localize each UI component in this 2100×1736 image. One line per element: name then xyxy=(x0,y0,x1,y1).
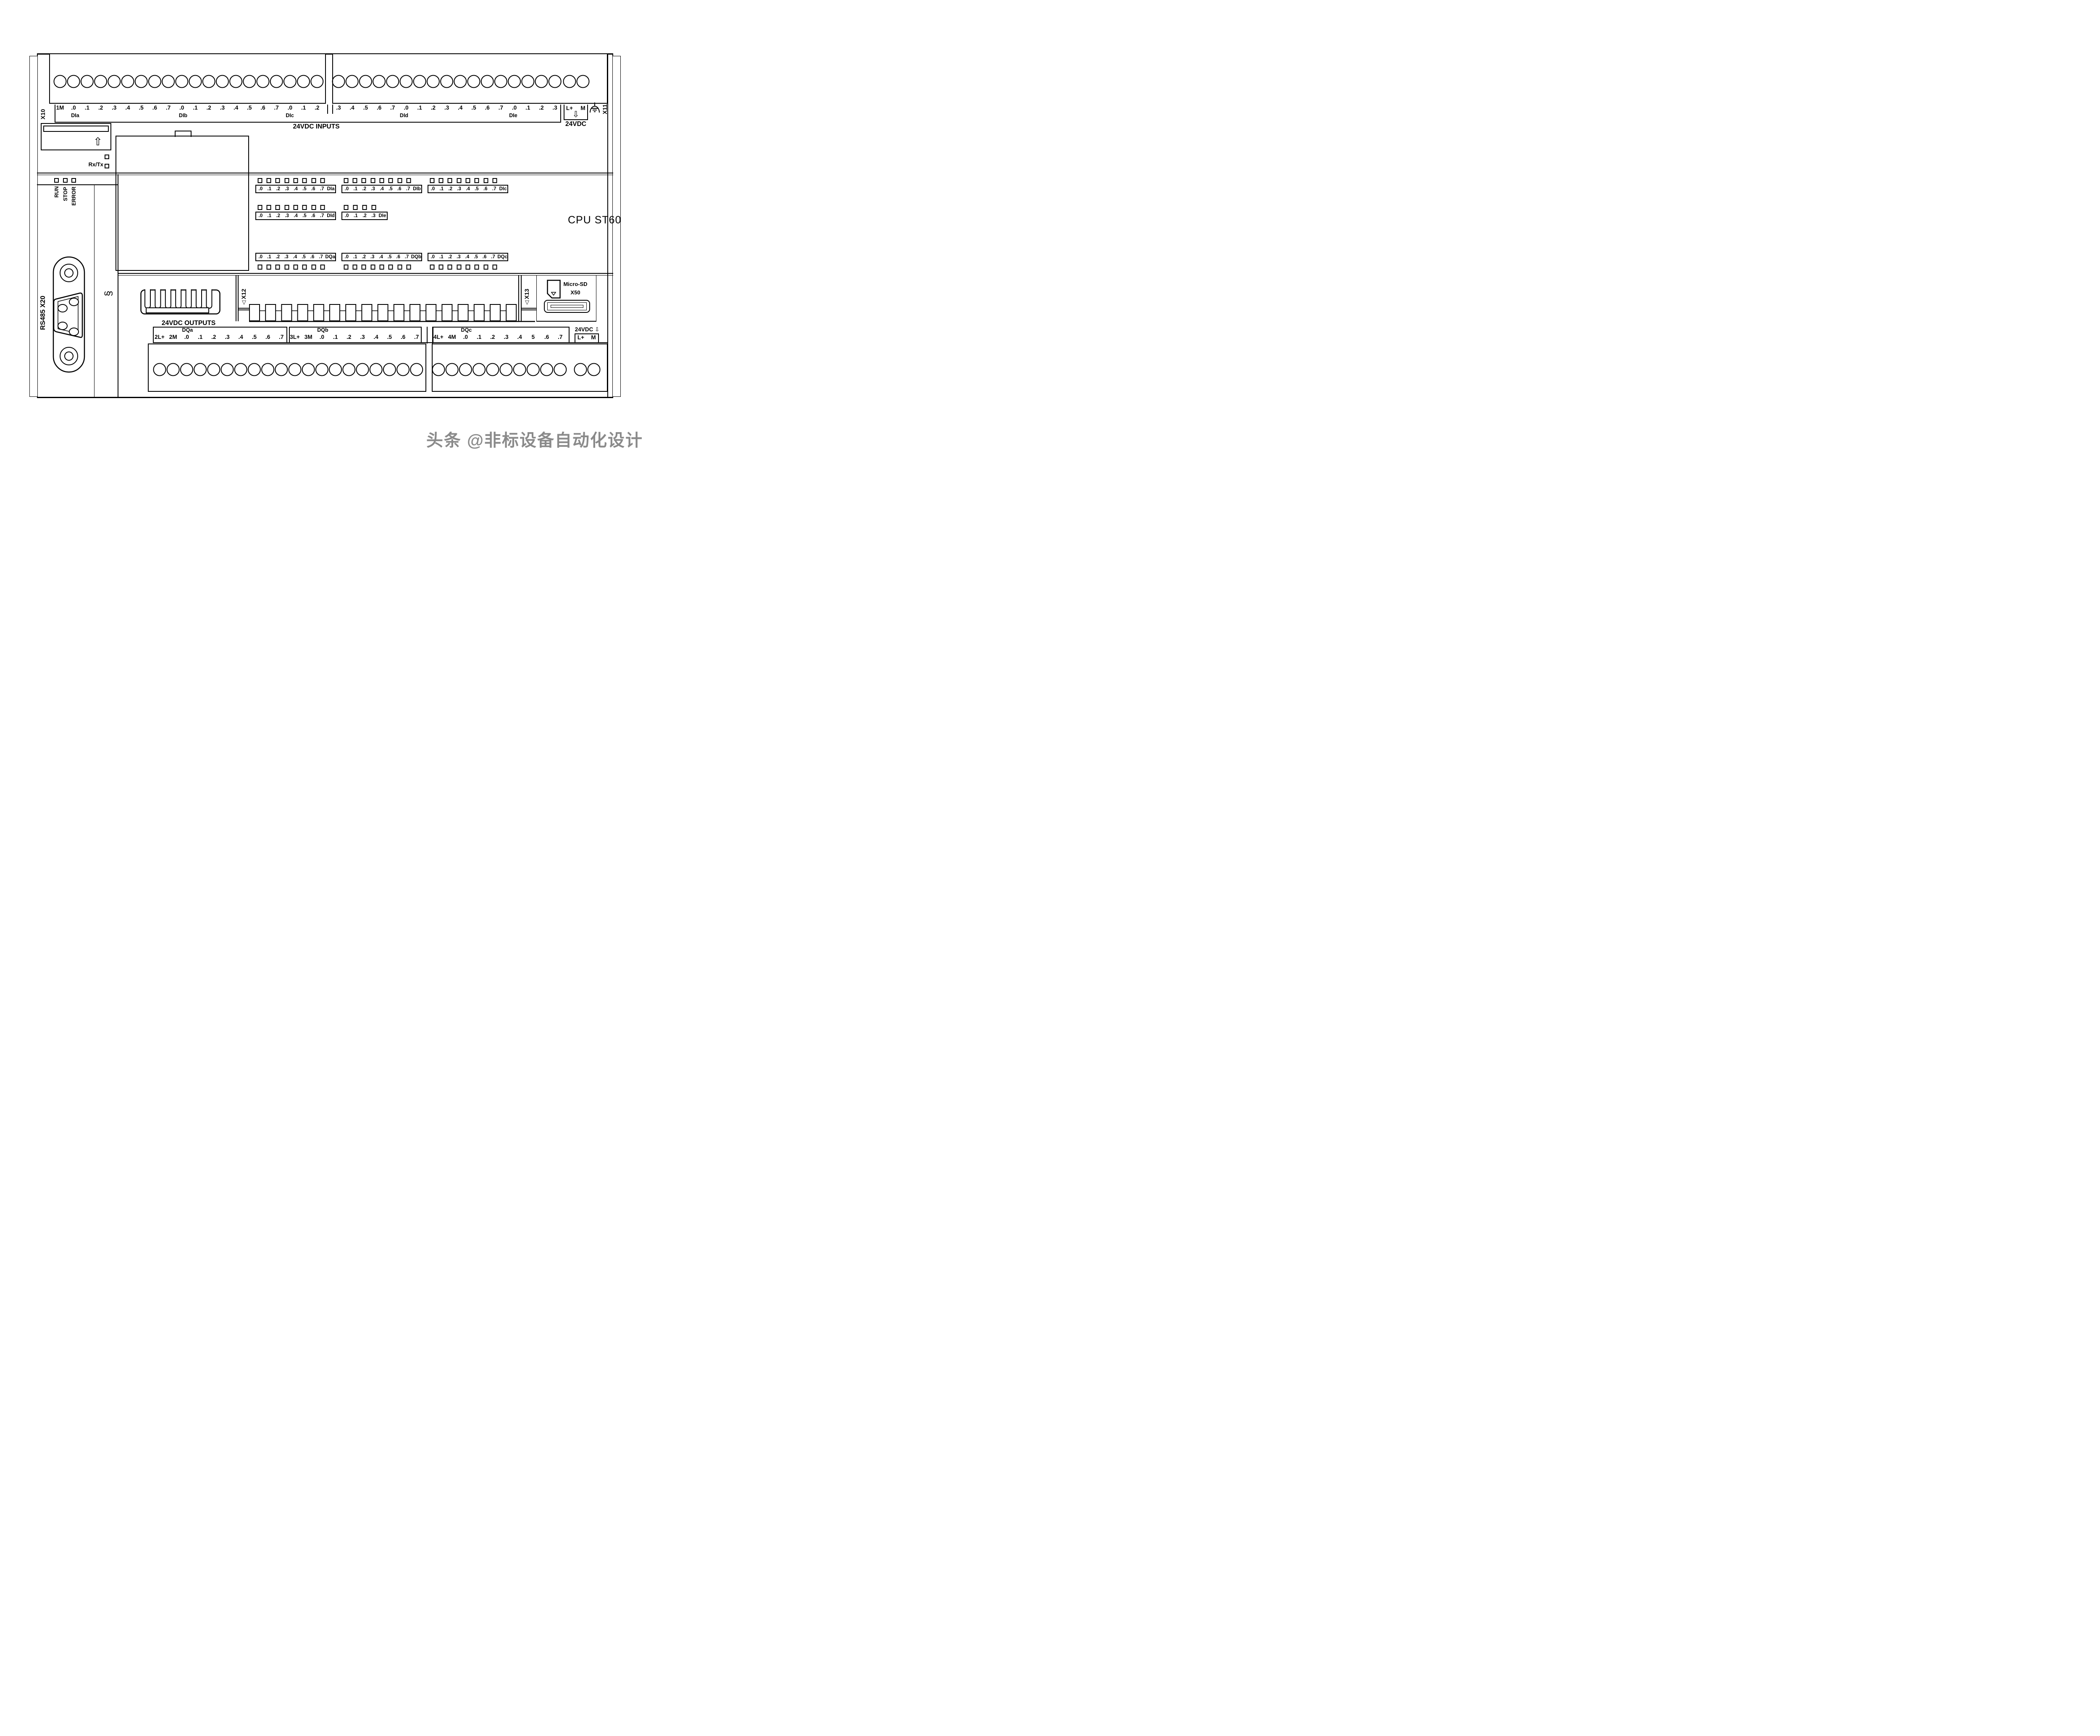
input-terminal-label: .1 xyxy=(85,105,89,111)
input-terminal-label: .6 xyxy=(485,105,490,111)
input-terminal-label: .6 xyxy=(152,105,157,111)
input-terminal-label: .0 xyxy=(71,105,76,111)
input-terminal-label: .4 xyxy=(125,105,130,111)
input-group-label: DIb xyxy=(179,113,187,118)
input-terminal-label: .2 xyxy=(539,105,543,111)
input-terminal-label: .7 xyxy=(166,105,171,111)
input-group-label: DId xyxy=(400,113,408,118)
input-group-label: DIe xyxy=(509,113,517,118)
input-terminal-label: .7 xyxy=(274,105,279,111)
input-terminal-label: .4 xyxy=(350,105,354,111)
input-group-label: DIc xyxy=(286,113,294,118)
input-terminal-label: .0 xyxy=(512,105,517,111)
input-terminal-label: .5 xyxy=(139,105,144,111)
input-terminal-label: .4 xyxy=(458,105,462,111)
input-terminal-label: .5 xyxy=(471,105,476,111)
terminal-screw-circles xyxy=(0,0,650,459)
input-terminal-label: .4 xyxy=(234,105,238,111)
input-terminal-label: .1 xyxy=(417,105,422,111)
input-terminal-label: .3 xyxy=(112,105,116,111)
input-terminal-label: .3 xyxy=(220,105,225,111)
input-terminal-label: .2 xyxy=(98,105,103,111)
input-terminal-label: .6 xyxy=(260,105,265,111)
input-terminal-label: .0 xyxy=(179,105,184,111)
input-terminal-label: .3 xyxy=(444,105,449,111)
input-group-label: DIa xyxy=(71,113,79,118)
plc-wiring-diagram: L+ M ⇩ 24VDC X10 X11 24VDC INPUTS ⇧ Rx/T… xyxy=(0,0,650,459)
input-terminal-label: .7 xyxy=(390,105,395,111)
input-terminal-label: .3 xyxy=(553,105,557,111)
input-terminal-label: .7 xyxy=(499,105,503,111)
input-terminal-label: .1 xyxy=(301,105,306,111)
input-terminal-label: .5 xyxy=(247,105,252,111)
input-terminal-label: .5 xyxy=(363,105,368,111)
input-terminal-label: .2 xyxy=(315,105,319,111)
input-terminal-label: .0 xyxy=(404,105,408,111)
input-terminal-label: .1 xyxy=(193,105,197,111)
watermark: 头条 @非标设备自动化设计 xyxy=(426,427,643,451)
input-terminal-label: .2 xyxy=(207,105,211,111)
input-terminal-label: .6 xyxy=(377,105,381,111)
input-terminal-label: .1 xyxy=(525,105,530,111)
input-terminal-label: 1M xyxy=(56,105,64,111)
input-terminal-label: .3 xyxy=(336,105,341,111)
input-terminal-label: .2 xyxy=(431,105,436,111)
input-terminal-label: .0 xyxy=(288,105,292,111)
